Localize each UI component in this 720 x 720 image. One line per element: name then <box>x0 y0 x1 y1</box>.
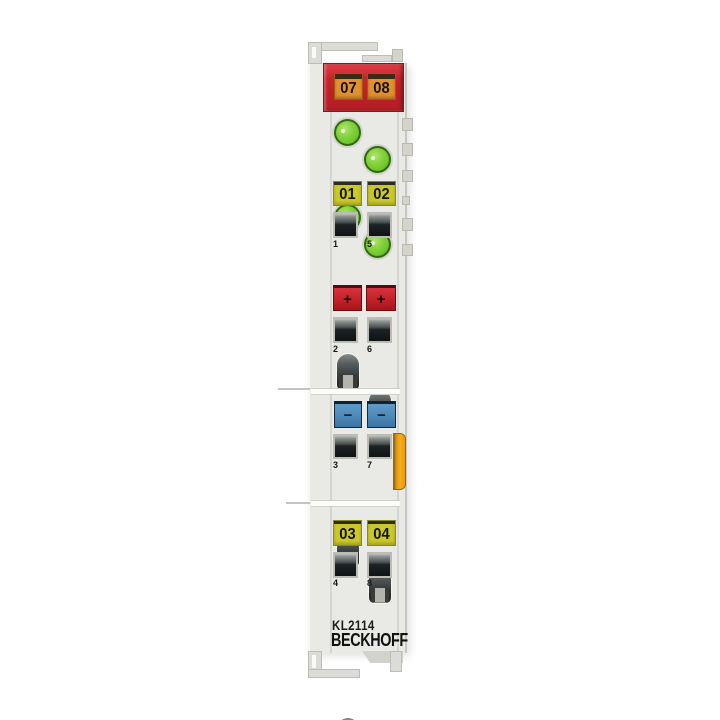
side-connector-tab-4 <box>402 196 410 205</box>
coding-tab <box>393 433 406 490</box>
terminal-point-number: 6 <box>367 345 372 354</box>
terminal-point-number: 1 <box>333 240 338 249</box>
plus-label-left: + <box>333 285 362 311</box>
screw-terminal-1 <box>337 354 359 390</box>
power-contact-number: 08 <box>369 79 394 99</box>
power-contact-label-07: 07 <box>334 73 363 100</box>
wire-contact-slot-3 <box>333 434 358 459</box>
release-pin-upper <box>278 388 310 390</box>
side-connector-tab-1 <box>402 118 413 131</box>
release-pin-lower <box>286 502 310 504</box>
screw-slot <box>371 588 389 603</box>
bottom-hook-slot <box>312 655 316 668</box>
terminal-point-number: 8 <box>367 579 372 588</box>
brand-logo: BECKHOFF <box>331 630 408 651</box>
top-hook-slot <box>312 47 316 58</box>
channel-number: 04 <box>369 524 394 545</box>
terminal-point-number: 3 <box>333 461 338 470</box>
channel-number: 03 <box>335 524 360 545</box>
bottom-right-foot <box>390 651 402 672</box>
wire-contact-slot-8 <box>367 552 392 578</box>
channel-label-04: 04 <box>367 520 396 546</box>
top-step-ledge <box>362 55 392 62</box>
wire-contact-slot-7 <box>367 434 392 459</box>
housing-seam-lower <box>311 500 400 507</box>
terminal-point-number: 5 <box>367 240 372 249</box>
wire-contact-slot-4 <box>333 552 358 578</box>
side-connector-tab-3 <box>402 170 413 182</box>
channel-label-01: 01 <box>333 181 362 206</box>
wire-contact-slot-6 <box>367 317 392 343</box>
side-connector-tab-5 <box>402 218 413 231</box>
terminal-point-number: 7 <box>367 461 372 470</box>
channel-label-02: 02 <box>367 181 396 206</box>
led-indicator-1 <box>334 119 361 146</box>
wire-contact-slot-2 <box>333 317 358 343</box>
terminal-point-number: 4 <box>333 579 338 588</box>
power-contact-label-08: 08 <box>367 73 396 100</box>
housing-seam-upper <box>311 388 400 395</box>
minus-label-left: − <box>334 401 362 428</box>
housing-face-edge-left <box>330 112 332 653</box>
terminal-point-number: 2 <box>333 345 338 354</box>
led-indicator-2 <box>364 146 391 173</box>
side-connector-tab-2 <box>402 143 413 156</box>
channel-number: 02 <box>369 185 394 205</box>
minus-label-right: − <box>367 401 396 428</box>
side-connector-tab-6 <box>402 244 413 256</box>
channel-label-03: 03 <box>333 520 362 546</box>
plus-label-right: + <box>366 285 396 311</box>
channel-number: 01 <box>335 185 360 205</box>
wire-contact-slot-5 <box>367 212 392 238</box>
top-right-connector-tab <box>392 49 403 62</box>
bottom-hook-foot <box>308 669 360 678</box>
power-contact-number: 07 <box>336 79 361 99</box>
housing-face-edge-right <box>397 112 399 653</box>
product-photo-kl2114: 07 08 01 02 1 5 + + 2 6 − − <box>0 0 720 720</box>
wire-contact-slot-1 <box>333 212 358 238</box>
